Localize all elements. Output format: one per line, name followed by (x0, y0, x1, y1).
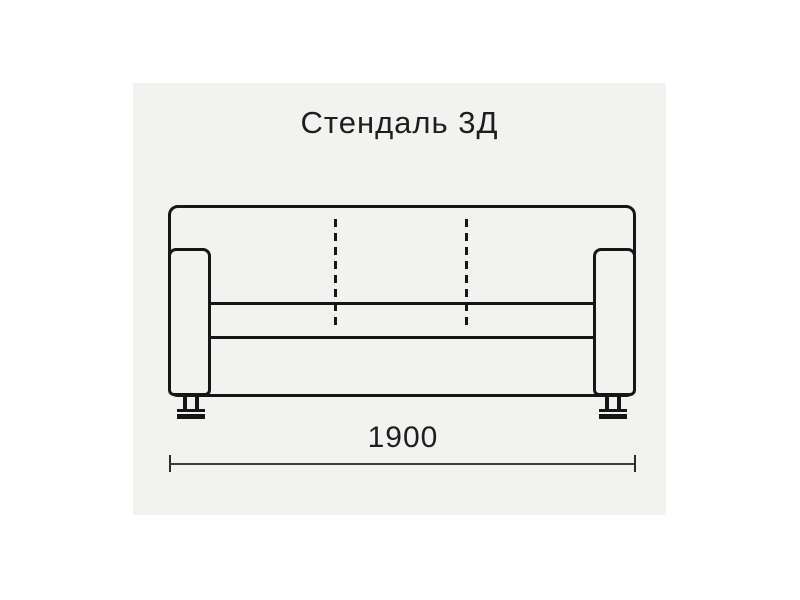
sofa-leg-stem-left (183, 395, 199, 410)
sofa-seat-line-top (210, 302, 593, 305)
sofa-leg-stem-right (605, 395, 621, 410)
sofa-backrest-outline (168, 205, 636, 397)
sofa-cushion-seam-dashed-right (465, 219, 468, 326)
dimension-tick-right (634, 455, 636, 472)
dimension-line (170, 463, 636, 465)
product-title: Стендаль 3Д (133, 104, 666, 142)
sofa-seat-line-bottom (210, 336, 593, 339)
product-card-panel: Стендаль 3Д 1900 (133, 83, 666, 515)
sofa-leg-foot-right (599, 409, 627, 419)
sofa-cushion-seam-dashed-left (334, 219, 337, 326)
sofa-armrest-left (168, 248, 211, 396)
dimension-label: 1900 (170, 423, 636, 453)
sofa-armrest-right (593, 248, 636, 396)
sofa-leg-foot-left (177, 409, 205, 419)
